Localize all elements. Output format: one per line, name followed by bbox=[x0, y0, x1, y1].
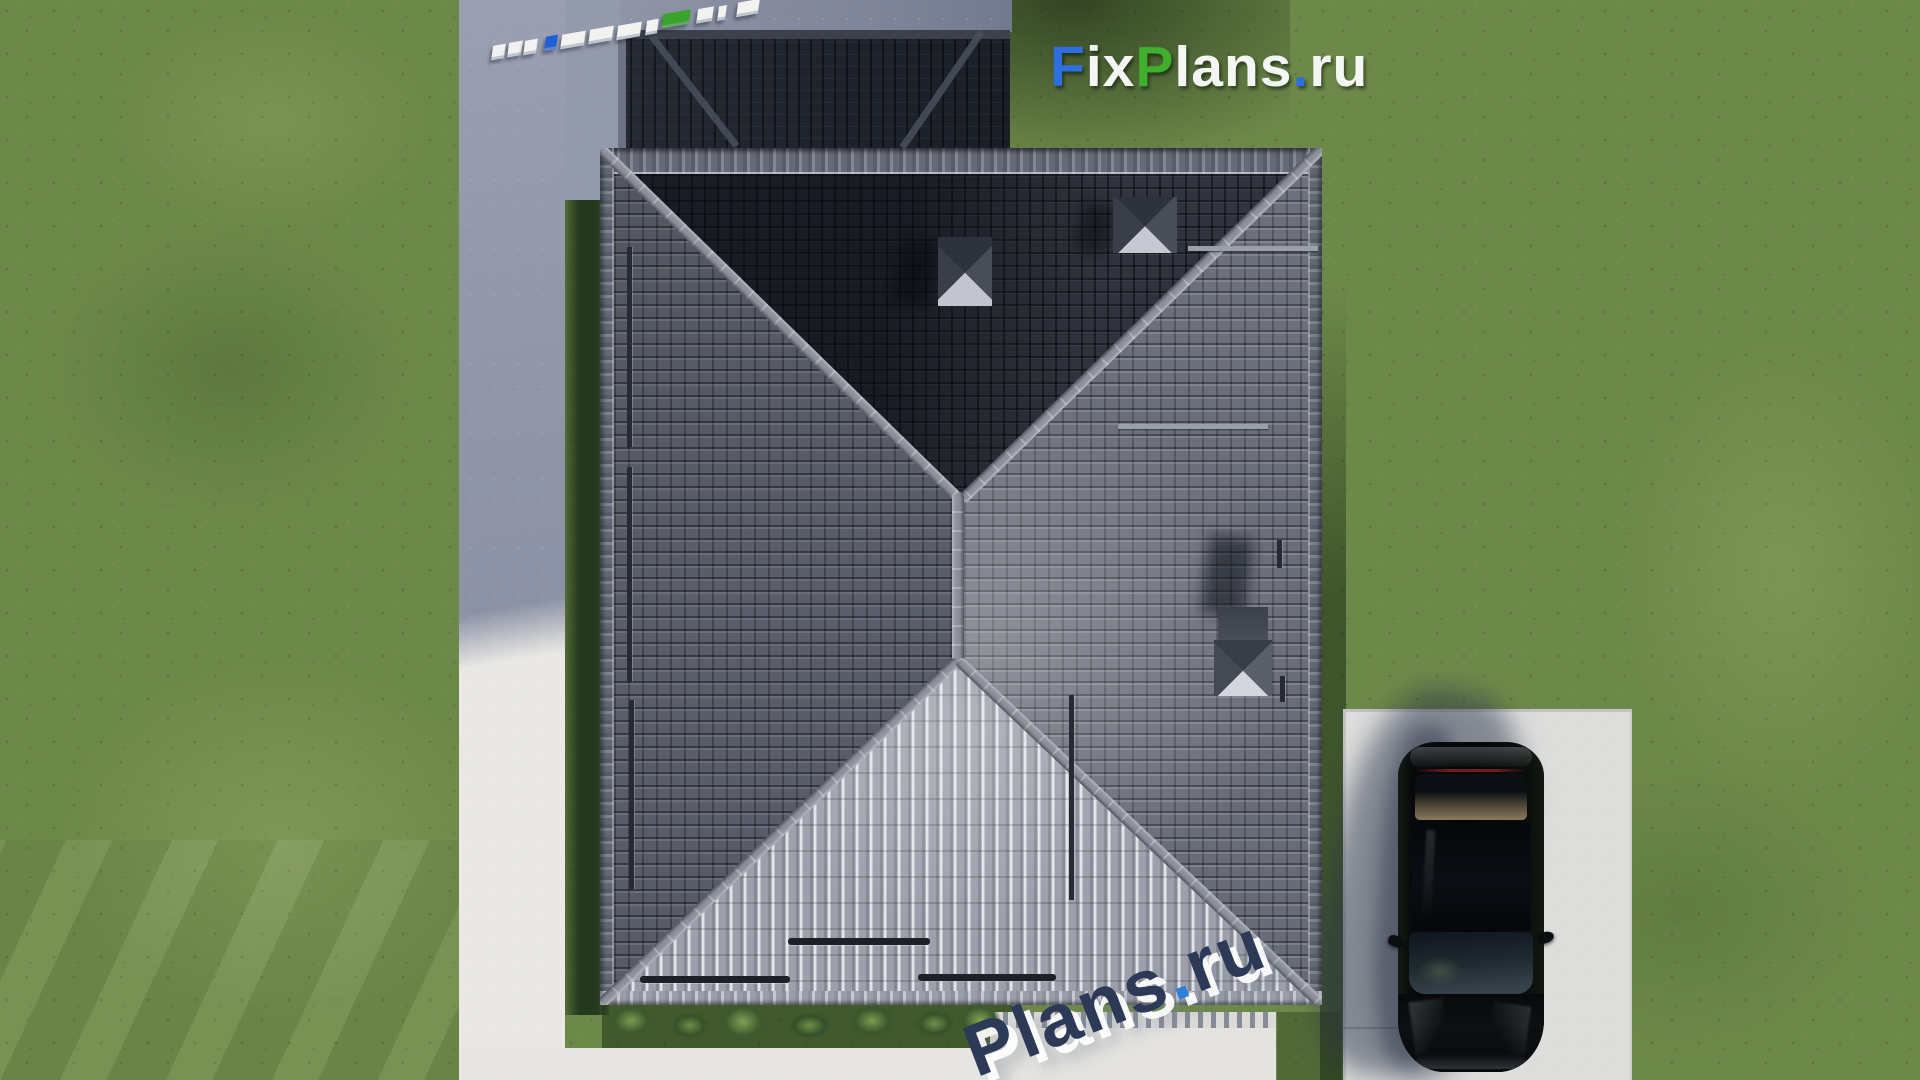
watermark-part-p: P bbox=[1135, 35, 1174, 99]
chimney-1 bbox=[938, 237, 992, 306]
ground-watermark-block-8 bbox=[645, 19, 659, 36]
ridge-cap-vertical bbox=[952, 492, 964, 668]
watermark-part-ix: ix bbox=[1086, 35, 1136, 99]
driveway-strip bbox=[459, 0, 565, 1080]
bush-5 bbox=[848, 1004, 908, 1046]
ground-watermark-block-2 bbox=[507, 40, 523, 57]
garage-valley-right bbox=[900, 30, 985, 148]
watermark-part-lans: lans bbox=[1174, 35, 1292, 99]
grass-patch-light-3 bbox=[110, 10, 430, 230]
grass-patch-dark-1 bbox=[40, 220, 420, 520]
roof-rail-east-1 bbox=[1069, 695, 1074, 900]
roof-rail-east-top bbox=[1188, 246, 1318, 251]
bush-4 bbox=[788, 1012, 836, 1046]
watermark-part-f: F bbox=[1050, 35, 1086, 99]
car-hood-reflection-left bbox=[1409, 998, 1450, 1054]
car-trunk-highlight bbox=[1410, 747, 1532, 767]
roof-eave-top bbox=[600, 148, 1322, 174]
walkway-bottom bbox=[459, 1048, 990, 1080]
watermark-fixplans: FixPlans.ru bbox=[1050, 34, 1368, 100]
roof-rail-west-1 bbox=[627, 247, 632, 447]
roof-rail-east-3 bbox=[1280, 676, 1285, 702]
roof-rail-east-mid bbox=[1118, 424, 1268, 429]
watermark-part-ru: ru bbox=[1309, 35, 1368, 99]
roof-rail-east-2 bbox=[1277, 540, 1282, 568]
ground-watermark-block-1 bbox=[491, 44, 506, 61]
bush-3 bbox=[718, 1002, 780, 1046]
roof-eave-right bbox=[1308, 148, 1322, 1005]
roof-eave-left bbox=[600, 148, 614, 1005]
house-roof bbox=[600, 148, 1322, 1005]
aerial-render: FixPlans.ru Plans.ru bbox=[0, 0, 1920, 1080]
chimney-3-cap bbox=[1214, 640, 1272, 696]
garage-roof bbox=[618, 30, 1010, 148]
garage-ridge-cap bbox=[618, 30, 1010, 39]
ground-watermark-block-4-blue bbox=[544, 35, 558, 52]
snow-rail-south-right bbox=[918, 974, 1056, 981]
garage-valley-left bbox=[646, 30, 740, 148]
car-windshield-reflection bbox=[1418, 956, 1462, 986]
grass-mow-streaks bbox=[0, 840, 520, 1080]
car-rear-window bbox=[1415, 774, 1527, 820]
snow-rail-south-middle bbox=[788, 938, 930, 945]
bush-1 bbox=[608, 1004, 666, 1046]
chimney-2 bbox=[1113, 197, 1177, 253]
car-hood-reflection-right bbox=[1487, 1002, 1531, 1055]
car-front-highlight bbox=[1416, 1054, 1526, 1069]
watermark-part-dot: . bbox=[1292, 35, 1309, 99]
bush-2 bbox=[670, 1012, 714, 1046]
roof-rail-west-3 bbox=[629, 700, 634, 890]
roof-rail-west-2 bbox=[627, 467, 632, 682]
garage-left-wall bbox=[618, 30, 626, 148]
car-taillight-bar bbox=[1414, 769, 1528, 772]
grass-patch-light-2 bbox=[1620, 340, 1920, 800]
car bbox=[1398, 742, 1544, 1072]
snow-rail-south-left bbox=[640, 976, 790, 983]
ground-watermark-block-3 bbox=[523, 39, 538, 56]
